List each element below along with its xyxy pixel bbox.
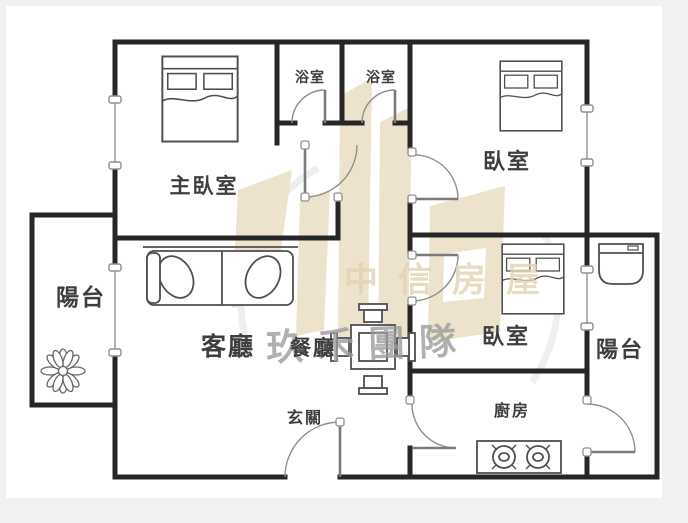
sofa-icon bbox=[143, 247, 298, 305]
room-label-balcony-left: 陽台 bbox=[56, 278, 106, 312]
window-cap-icon bbox=[109, 264, 121, 271]
room-label-entry: 玄關 bbox=[287, 404, 323, 428]
floor-plan-page: 中信房屋 玖禾團隊 主臥室 浴室 浴室 臥室 臥室 客廳 餐廳 玄關 廚房 陽台… bbox=[0, 0, 688, 523]
plant-flower-icon bbox=[41, 349, 85, 393]
room-label-bedroom-mid-right: 臥室 bbox=[482, 319, 530, 351]
window-cap-icon bbox=[581, 266, 593, 273]
window-cap-icon bbox=[581, 159, 593, 166]
stove-icon bbox=[477, 441, 561, 473]
window-cap-icon bbox=[109, 96, 121, 103]
bed-top-right-icon bbox=[500, 61, 562, 131]
room-label-dining-room: 餐廳 bbox=[290, 332, 336, 362]
room-label-master-bedroom: 主臥室 bbox=[170, 170, 239, 200]
washing-machine-icon bbox=[599, 244, 643, 284]
window-cap-icon bbox=[581, 323, 593, 330]
window-cap-icon bbox=[109, 349, 121, 356]
room-label-balcony-right: 陽台 bbox=[596, 332, 644, 364]
window-cap-icon bbox=[109, 162, 121, 169]
watermark-brand-text: 中信房屋 bbox=[344, 253, 560, 302]
room-label-kitchen: 廚房 bbox=[494, 397, 530, 421]
window-cap-icon bbox=[581, 105, 593, 112]
room-label-bathroom-1: 浴室 bbox=[295, 67, 325, 87]
room-label-bedroom-top-right: 臥室 bbox=[483, 144, 531, 176]
room-label-bathroom-2: 浴室 bbox=[366, 67, 396, 87]
room-label-living-room: 客廳 bbox=[201, 327, 255, 363]
master-bed-icon bbox=[162, 56, 237, 141]
